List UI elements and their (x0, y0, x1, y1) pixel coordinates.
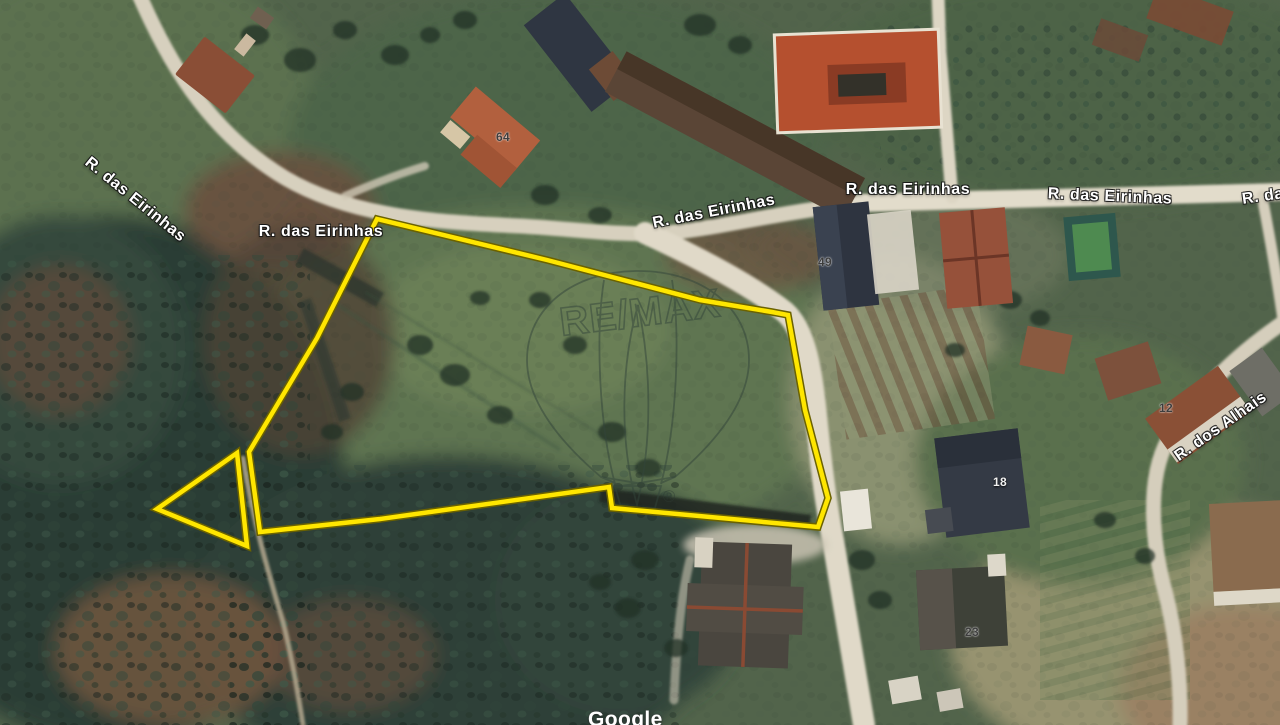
google-logo: Google (588, 708, 663, 725)
parcel-boundary-layer (0, 0, 1280, 725)
parcel-boundary-west-triangle (157, 453, 247, 546)
parcel-boundary-main-parcel (249, 219, 828, 532)
parcel-boundary-main-parcel (249, 219, 828, 532)
satellite-map-viewport[interactable]: RE/MAX ® R. das EirinhasR. das EirinhasR… (0, 0, 1280, 725)
